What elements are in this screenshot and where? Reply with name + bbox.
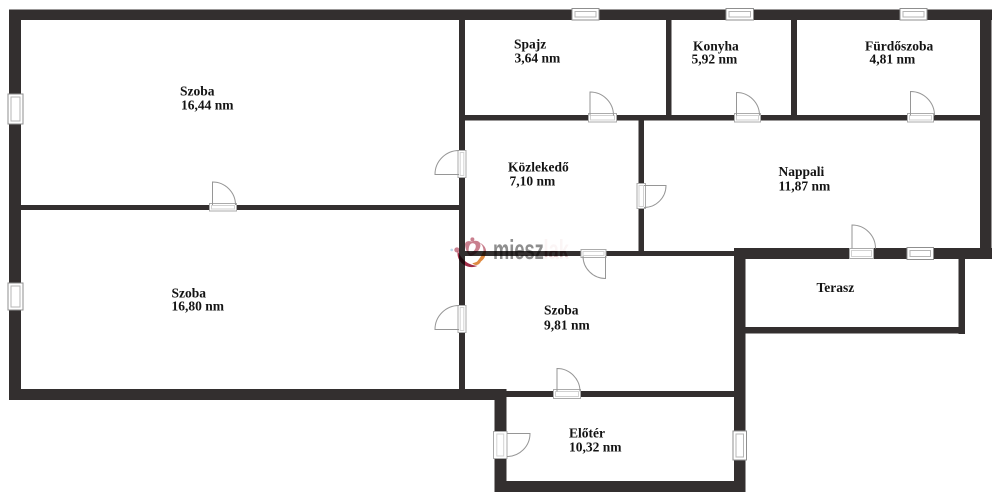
svg-text:5,92 nm: 5,92 nm <box>692 52 739 67</box>
svg-text:10,32 nm: 10,32 nm <box>569 440 622 455</box>
svg-text:Nappali: Nappali <box>779 164 825 179</box>
svg-text:4,81 nm: 4,81 nm <box>870 52 917 67</box>
svg-text:3,64 nm: 3,64 nm <box>515 51 562 66</box>
svg-text:Spajz: Spajz <box>514 37 546 52</box>
svg-text:Szoba: Szoba <box>180 84 215 99</box>
svg-text:7,10 nm: 7,10 nm <box>510 174 557 189</box>
svg-text:Közlekedő: Közlekedő <box>508 160 569 175</box>
svg-text:16,80 nm: 16,80 nm <box>172 299 225 314</box>
svg-text:Előtér: Előtér <box>569 426 605 441</box>
svg-text:9,81 nm: 9,81 nm <box>544 318 591 333</box>
svg-text:Szoba: Szoba <box>544 303 579 318</box>
svg-text:miesz: miesz <box>493 234 544 265</box>
svg-text:16,44 nm: 16,44 nm <box>181 98 234 113</box>
svg-text:Terasz: Terasz <box>817 280 855 295</box>
svg-text:11,87 nm: 11,87 nm <box>779 179 832 194</box>
